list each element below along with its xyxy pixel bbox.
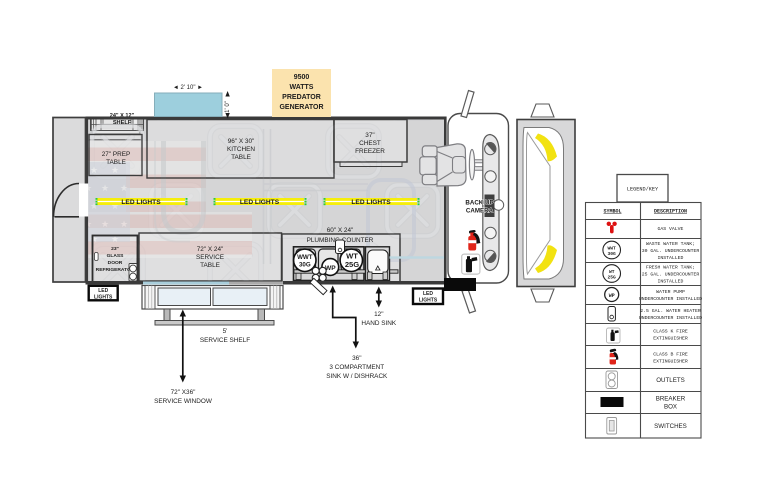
svg-text:SERVICE: SERVICE <box>196 254 224 261</box>
svg-text:60" X 24": 60" X 24" <box>327 227 354 234</box>
svg-text:INSTALLED: INSTALLED <box>658 279 684 285</box>
svg-text:1' 0": 1' 0" <box>225 101 231 113</box>
svg-text:◄ 2' 10" ►: ◄ 2' 10" ► <box>173 85 203 91</box>
svg-text:SYMBOL: SYMBOL <box>603 209 621 215</box>
svg-text:CLASS B FIRE: CLASS B FIRE <box>653 352 688 358</box>
svg-text:INSTALLED: INSTALLED <box>658 255 684 261</box>
svg-text:SERVICE SHELF: SERVICE SHELF <box>200 337 250 344</box>
svg-text:30 GAL. UNDERCOUNTER: 30 GAL. UNDERCOUNTER <box>642 248 700 254</box>
svg-text:TABLE: TABLE <box>231 154 251 161</box>
svg-text:25 GAL. UNDERCOUNTER: 25 GAL. UNDERCOUNTER <box>642 272 700 278</box>
svg-text:CLASS K FIRE: CLASS K FIRE <box>653 329 688 335</box>
svg-text:72" X 24": 72" X 24" <box>197 246 224 253</box>
svg-text:WWT: WWT <box>297 254 313 261</box>
svg-text:PREDATOR: PREDATOR <box>282 94 321 101</box>
svg-text:KITCHEN: KITCHEN <box>227 146 255 153</box>
svg-text:LED: LED <box>423 291 433 297</box>
svg-text:WATER PUMP: WATER PUMP <box>656 289 685 295</box>
svg-text:★: ★ <box>120 183 128 193</box>
svg-text:37": 37" <box>365 132 374 139</box>
svg-text:GAS VALVE: GAS VALVE <box>658 226 684 232</box>
svg-text:WASTE WATER TANK;: WASTE WATER TANK; <box>646 241 695 247</box>
svg-text:3 COMPARTMENT: 3 COMPARTMENT <box>329 364 384 371</box>
svg-text:BREAKER: BREAKER <box>656 396 686 403</box>
svg-text:BOX: BOX <box>664 404 677 411</box>
svg-text:TABLE: TABLE <box>106 159 126 166</box>
svg-text:WP: WP <box>609 293 615 299</box>
svg-text:72" X36": 72" X36" <box>171 389 196 396</box>
svg-text:36": 36" <box>352 355 361 362</box>
svg-text:CAMERA: CAMERA <box>466 208 494 215</box>
svg-text:12": 12" <box>374 311 383 318</box>
svg-text:30G: 30G <box>608 251 617 257</box>
svg-text:★: ★ <box>101 219 109 229</box>
svg-text:SWITCHES: SWITCHES <box>654 423 687 430</box>
svg-text:WWT: WWT <box>608 245 617 251</box>
svg-text:2.5 GAL. WATER HEATER: 2.5 GAL. WATER HEATER <box>640 308 701 314</box>
svg-text:HAND SINK: HAND SINK <box>361 320 397 327</box>
svg-text:FREEZER: FREEZER <box>355 148 385 155</box>
svg-text:SERVICE WINDOW: SERVICE WINDOW <box>154 398 213 405</box>
svg-text:★: ★ <box>90 165 98 175</box>
svg-text:WATTS: WATTS <box>290 84 314 91</box>
svg-text:WT: WT <box>609 269 615 275</box>
svg-text:96" X 30": 96" X 30" <box>228 138 255 145</box>
svg-text:UNDERCOUNTER INSTALLED: UNDERCOUNTER INSTALLED <box>639 315 702 321</box>
svg-text:TABLE: TABLE <box>200 262 220 269</box>
svg-text:LIGHTS: LIGHTS <box>94 295 113 301</box>
svg-text:SHELF: SHELF <box>113 120 132 126</box>
svg-text:25G: 25G <box>608 274 617 280</box>
svg-text:LED LIGHTS: LED LIGHTS <box>121 199 161 206</box>
svg-text:9500: 9500 <box>294 74 310 81</box>
svg-text:23": 23" <box>111 246 119 252</box>
svg-text:DESCRIPTION: DESCRIPTION <box>654 209 687 215</box>
svg-text:5': 5' <box>223 328 228 335</box>
svg-text:OUTLETS: OUTLETS <box>656 377 685 384</box>
svg-text:LIGHTS: LIGHTS <box>419 298 438 304</box>
svg-text:UNDERCOUNTER INSTALLED: UNDERCOUNTER INSTALLED <box>639 296 702 302</box>
svg-text:EXTINGUISHER: EXTINGUISHER <box>653 359 688 365</box>
svg-text:30G: 30G <box>299 262 311 269</box>
svg-text:EXTINGUISHER: EXTINGUISHER <box>653 336 688 342</box>
svg-text:LED: LED <box>98 288 108 294</box>
svg-text:BACK UP: BACK UP <box>465 200 493 207</box>
svg-text:★: ★ <box>101 183 109 193</box>
svg-text:LEGEND/KEY: LEGEND/KEY <box>627 187 659 193</box>
svg-text:FRESH WATER TANK;: FRESH WATER TANK; <box>646 265 695 271</box>
svg-text:LED LIGHTS: LED LIGHTS <box>240 199 280 206</box>
svg-text:SINK W / DISHRACK: SINK W / DISHRACK <box>326 373 388 380</box>
svg-text:25G: 25G <box>345 260 359 269</box>
svg-text:★: ★ <box>111 165 119 175</box>
svg-text:27" PREP: 27" PREP <box>102 151 131 158</box>
svg-text:★: ★ <box>120 219 128 229</box>
svg-text:CHEST: CHEST <box>359 140 381 147</box>
svg-text:DOOR: DOOR <box>108 260 123 266</box>
svg-text:LED LIGHTS: LED LIGHTS <box>351 199 391 206</box>
svg-text:GENERATOR: GENERATOR <box>279 104 323 111</box>
svg-text:GLASS: GLASS <box>107 253 125 259</box>
